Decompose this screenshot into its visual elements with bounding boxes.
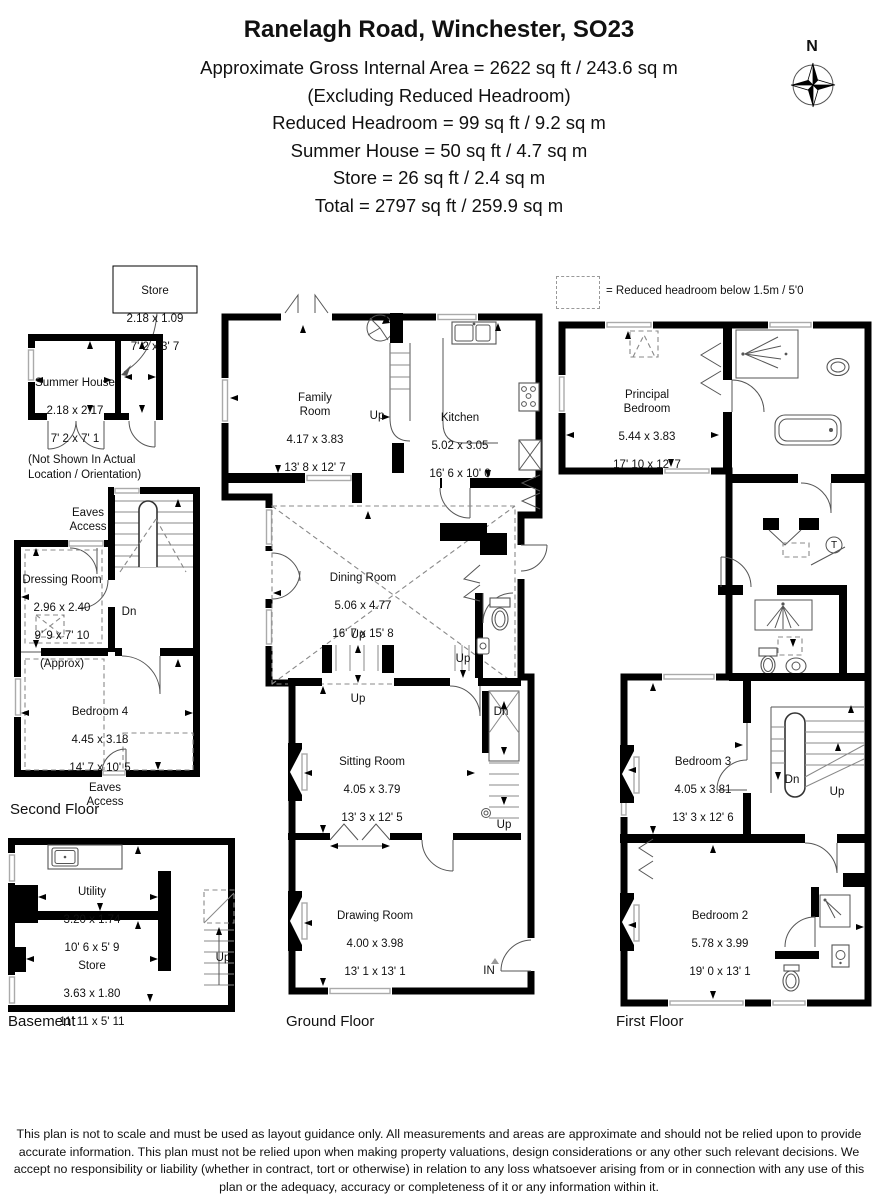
- basin-icon: [477, 638, 489, 654]
- area-line: Total = 2797 sq ft / 259.9 sq m: [0, 192, 878, 220]
- stairs-dn-label: Dn: [122, 605, 137, 619]
- kitchen-sink: [452, 322, 496, 344]
- stairs-up-label: Up: [497, 818, 512, 832]
- toilet-icon: [759, 648, 777, 674]
- reduced-headroom-legend-text: = Reduced headroom below 1.5m / 5'0: [606, 284, 804, 299]
- room-label-dressing-room: Dressing Room 2.96 x 2.40 9' 9 x 7' 10 (…: [22, 559, 101, 685]
- shower-icon: [736, 330, 798, 378]
- summer-house-window: [29, 350, 34, 380]
- stairs-dn-label: Dn: [785, 773, 800, 787]
- room-label-bedroom4: Bedroom 4 4.45 x 3.18 14' 7 x 10' 5: [69, 691, 130, 789]
- compass-icon: [788, 58, 840, 114]
- bedroom2-door: [805, 843, 837, 873]
- fireplace-icon: [620, 745, 639, 803]
- stairs-up-label: Up: [370, 409, 385, 423]
- fireplace-icon: [288, 743, 307, 801]
- stairs-up-label: Up: [830, 785, 845, 799]
- bedroom3-window-north: [664, 675, 714, 680]
- basin-icon: [827, 359, 849, 376]
- appliance-icon: [519, 440, 541, 470]
- outbuilding-note: (Not Shown In Actual Location / Orientat…: [28, 453, 141, 483]
- room-label-store-outbuilding: Store 2.18 x 1.09 7' 2 x 3' 7: [127, 270, 184, 368]
- room-label-summer-house: Summer House 2.18 x 2.17 7' 2 x 7' 1: [35, 362, 115, 460]
- area-line: (Excluding Reduced Headroom): [0, 82, 878, 110]
- stairs-up-label: Up: [351, 692, 366, 706]
- kitchen-window: [438, 315, 476, 320]
- bathroom-window: [770, 323, 811, 328]
- staircase-up-ground: [382, 343, 410, 441]
- area-line: Summer House = 50 sq ft / 4.7 sq m: [0, 137, 878, 165]
- linen-cupboard: [783, 543, 809, 557]
- bedroom4-window: [16, 679, 21, 715]
- room-label-bedroom3: Bedroom 3 4.05 x 3.81 13' 3 x 12' 6: [672, 741, 733, 839]
- store-door: [129, 421, 155, 447]
- eaves-access-label: Eaves Access: [69, 506, 106, 534]
- principal-bedroom-door: [732, 380, 764, 412]
- floor-label-first: First Floor: [616, 1013, 684, 1030]
- room-label-principal-bedroom: Principal Bedroom 5.44 x 3.83 17' 10 x 1…: [613, 374, 681, 486]
- stairs-up-label: Up: [216, 951, 231, 965]
- area-summary: Approximate Gross Internal Area = 2622 s…: [0, 54, 878, 219]
- basement-window: [10, 855, 15, 881]
- floorplan-page: Ranelagh Road, Winchester, SO23 Approxim…: [0, 0, 878, 1200]
- floor-label-basement: Basement: [8, 1013, 76, 1030]
- shower-icon: [820, 895, 850, 927]
- bedroom2-window-south: [773, 1001, 805, 1005]
- toilet-icon: [490, 598, 510, 630]
- disclaimer-text: This plan is not to scale and must be us…: [10, 1126, 868, 1196]
- reduced-headroom-legend-swatch: [556, 276, 600, 309]
- stairs-up-label: Up: [351, 628, 366, 642]
- staircase-down: [115, 499, 193, 572]
- sitting-room-door: [450, 686, 480, 716]
- area-line: Approximate Gross Internal Area = 2622 s…: [0, 54, 878, 82]
- family-room-bay-doors: [285, 295, 328, 313]
- utility-sink: [48, 845, 122, 869]
- floor-label-ground: Ground Floor: [286, 1013, 374, 1030]
- area-line: Reduced Headroom = 99 sq ft / 9.2 sq m: [0, 109, 878, 137]
- room-label-sitting-room: Sitting Room 4.05 x 3.79 13' 3 x 12' 5: [339, 741, 405, 839]
- fireplace-icon: [288, 891, 307, 951]
- room-label-family-room: Family Room 4.17 x 3.83 13' 8 x 12' 7: [284, 377, 345, 489]
- shower-icon: [755, 600, 812, 630]
- basin-icon: [786, 658, 806, 674]
- bedroom2-window-south: [670, 1001, 743, 1005]
- stairs-up-label: Up: [456, 652, 471, 666]
- basement-window: [10, 977, 15, 1003]
- stove-icon: [519, 383, 539, 411]
- bathroom-door: [801, 483, 831, 513]
- water-tank-label: T: [831, 539, 837, 553]
- toilet-icon: [783, 965, 799, 991]
- family-room-window: [223, 380, 228, 421]
- stairs-dn-label: Dn: [494, 705, 509, 719]
- principal-bedroom-window: [607, 323, 651, 328]
- dining-room-window: [267, 510, 272, 544]
- fireplace-icon: [620, 893, 639, 951]
- room-label-drawing-room: Drawing Room 4.00 x 3.98 13' 1 x 13' 1: [337, 895, 413, 993]
- drawing-room-door: [422, 840, 453, 871]
- floor-label-second: Second Floor: [10, 801, 99, 818]
- compass-north-label: N: [806, 40, 818, 54]
- reduced-headroom-wardrobe: [630, 331, 658, 357]
- area-line: Store = 26 sq ft / 2.4 sq m: [0, 164, 878, 192]
- entrance-door: [491, 940, 531, 971]
- room-label-bedroom2: Bedroom 2 5.78 x 3.99 19' 0 x 13' 1: [689, 895, 750, 993]
- dining-room-window: [267, 610, 272, 644]
- bathtub-icon: [775, 415, 841, 445]
- ensuite-door: [785, 917, 815, 947]
- entrance-label: IN: [483, 964, 495, 978]
- page-title: Ranelagh Road, Winchester, SO23: [0, 16, 878, 44]
- bedroom4-door: [122, 656, 160, 694]
- room-label-kitchen: Kitchen 5.02 x 3.05 16' 6 x 10' 0: [429, 397, 490, 495]
- basin-icon: [832, 945, 849, 967]
- principal-bedroom-window-west: [560, 377, 565, 411]
